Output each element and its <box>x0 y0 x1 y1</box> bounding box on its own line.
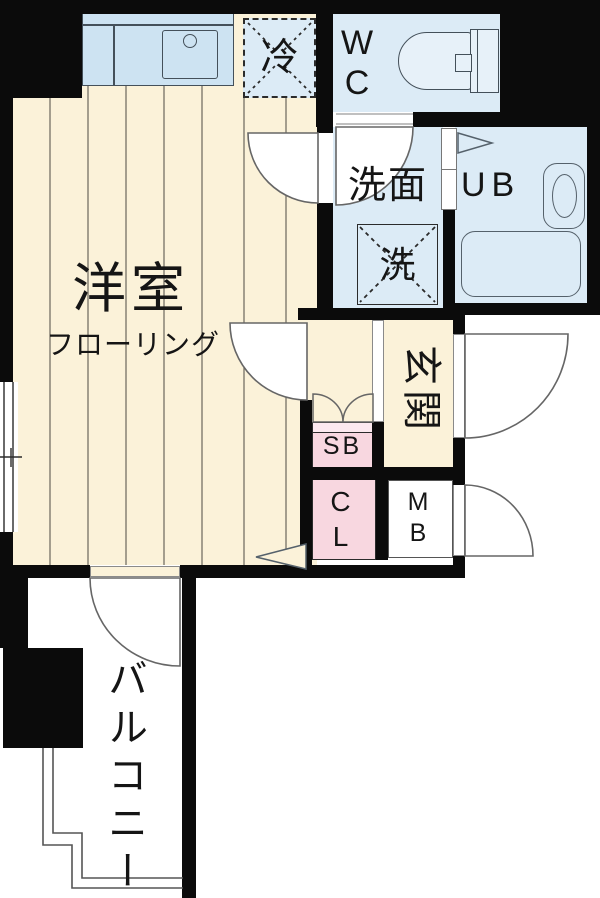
washroom-label: 洗面 <box>333 167 443 205</box>
bath-basin-inner <box>552 174 577 218</box>
door-swing-balcony <box>90 578 180 666</box>
door-swing-meter-box <box>465 485 533 556</box>
wall <box>587 127 600 315</box>
meter-box-door-leaf <box>453 483 465 556</box>
kitchen-counter <box>82 13 234 86</box>
washer-label: 洗 <box>357 224 438 305</box>
closet-label: CL <box>326 486 354 556</box>
wall <box>376 480 388 560</box>
balcony-pillar <box>3 648 83 748</box>
wall <box>453 556 465 578</box>
bathtub-icon <box>461 231 581 297</box>
toilet-tank-icon <box>470 29 499 93</box>
wall <box>372 422 384 480</box>
bath-door-split-line <box>442 169 456 170</box>
wall <box>453 438 465 467</box>
meter-box-label: MB <box>405 488 430 550</box>
wall <box>453 303 465 334</box>
wall <box>413 112 513 127</box>
entrance-door-leaf <box>453 334 465 438</box>
entrance-label: 玄関 <box>399 345 443 435</box>
wall <box>0 565 90 578</box>
unit-bath-label: UB <box>461 168 520 202</box>
faucet-icon <box>183 34 197 48</box>
wall <box>316 13 333 127</box>
refrigerator-label: 冷 <box>243 18 316 98</box>
wall <box>455 303 600 315</box>
toilet-room-label: WC <box>340 24 374 104</box>
toilet-tank-line <box>477 30 478 92</box>
wall <box>180 565 463 578</box>
flooring-note-label: フローリング <box>46 331 220 359</box>
door-swing-entrance <box>465 334 568 438</box>
bath-folding-door <box>441 128 457 210</box>
western-room-label: 洋室 <box>72 262 190 316</box>
toilet-flush-knob <box>455 54 472 72</box>
shoe-box-label: SB <box>312 434 373 459</box>
hallway-floor <box>312 320 372 422</box>
balcony-label: バルコニー <box>104 658 144 898</box>
wall <box>298 308 463 320</box>
counter-divider-line <box>113 24 115 85</box>
wall <box>300 400 312 565</box>
counter-edge-line <box>83 24 233 26</box>
threshold-lines <box>336 114 413 124</box>
floor-plan: 洋室 フローリング 冷 WC 洗面 洗 UB 玄関 SB CL MB バルコニー <box>0 0 600 898</box>
wall <box>317 127 333 133</box>
entrance-step-divider <box>372 320 384 422</box>
wall <box>182 565 196 898</box>
wall <box>500 0 600 127</box>
window <box>0 382 18 532</box>
wall <box>0 532 13 565</box>
wall <box>0 14 13 382</box>
wall <box>453 480 465 485</box>
wall <box>317 203 333 308</box>
wall <box>443 210 455 308</box>
balcony-door-leaf <box>90 566 180 577</box>
